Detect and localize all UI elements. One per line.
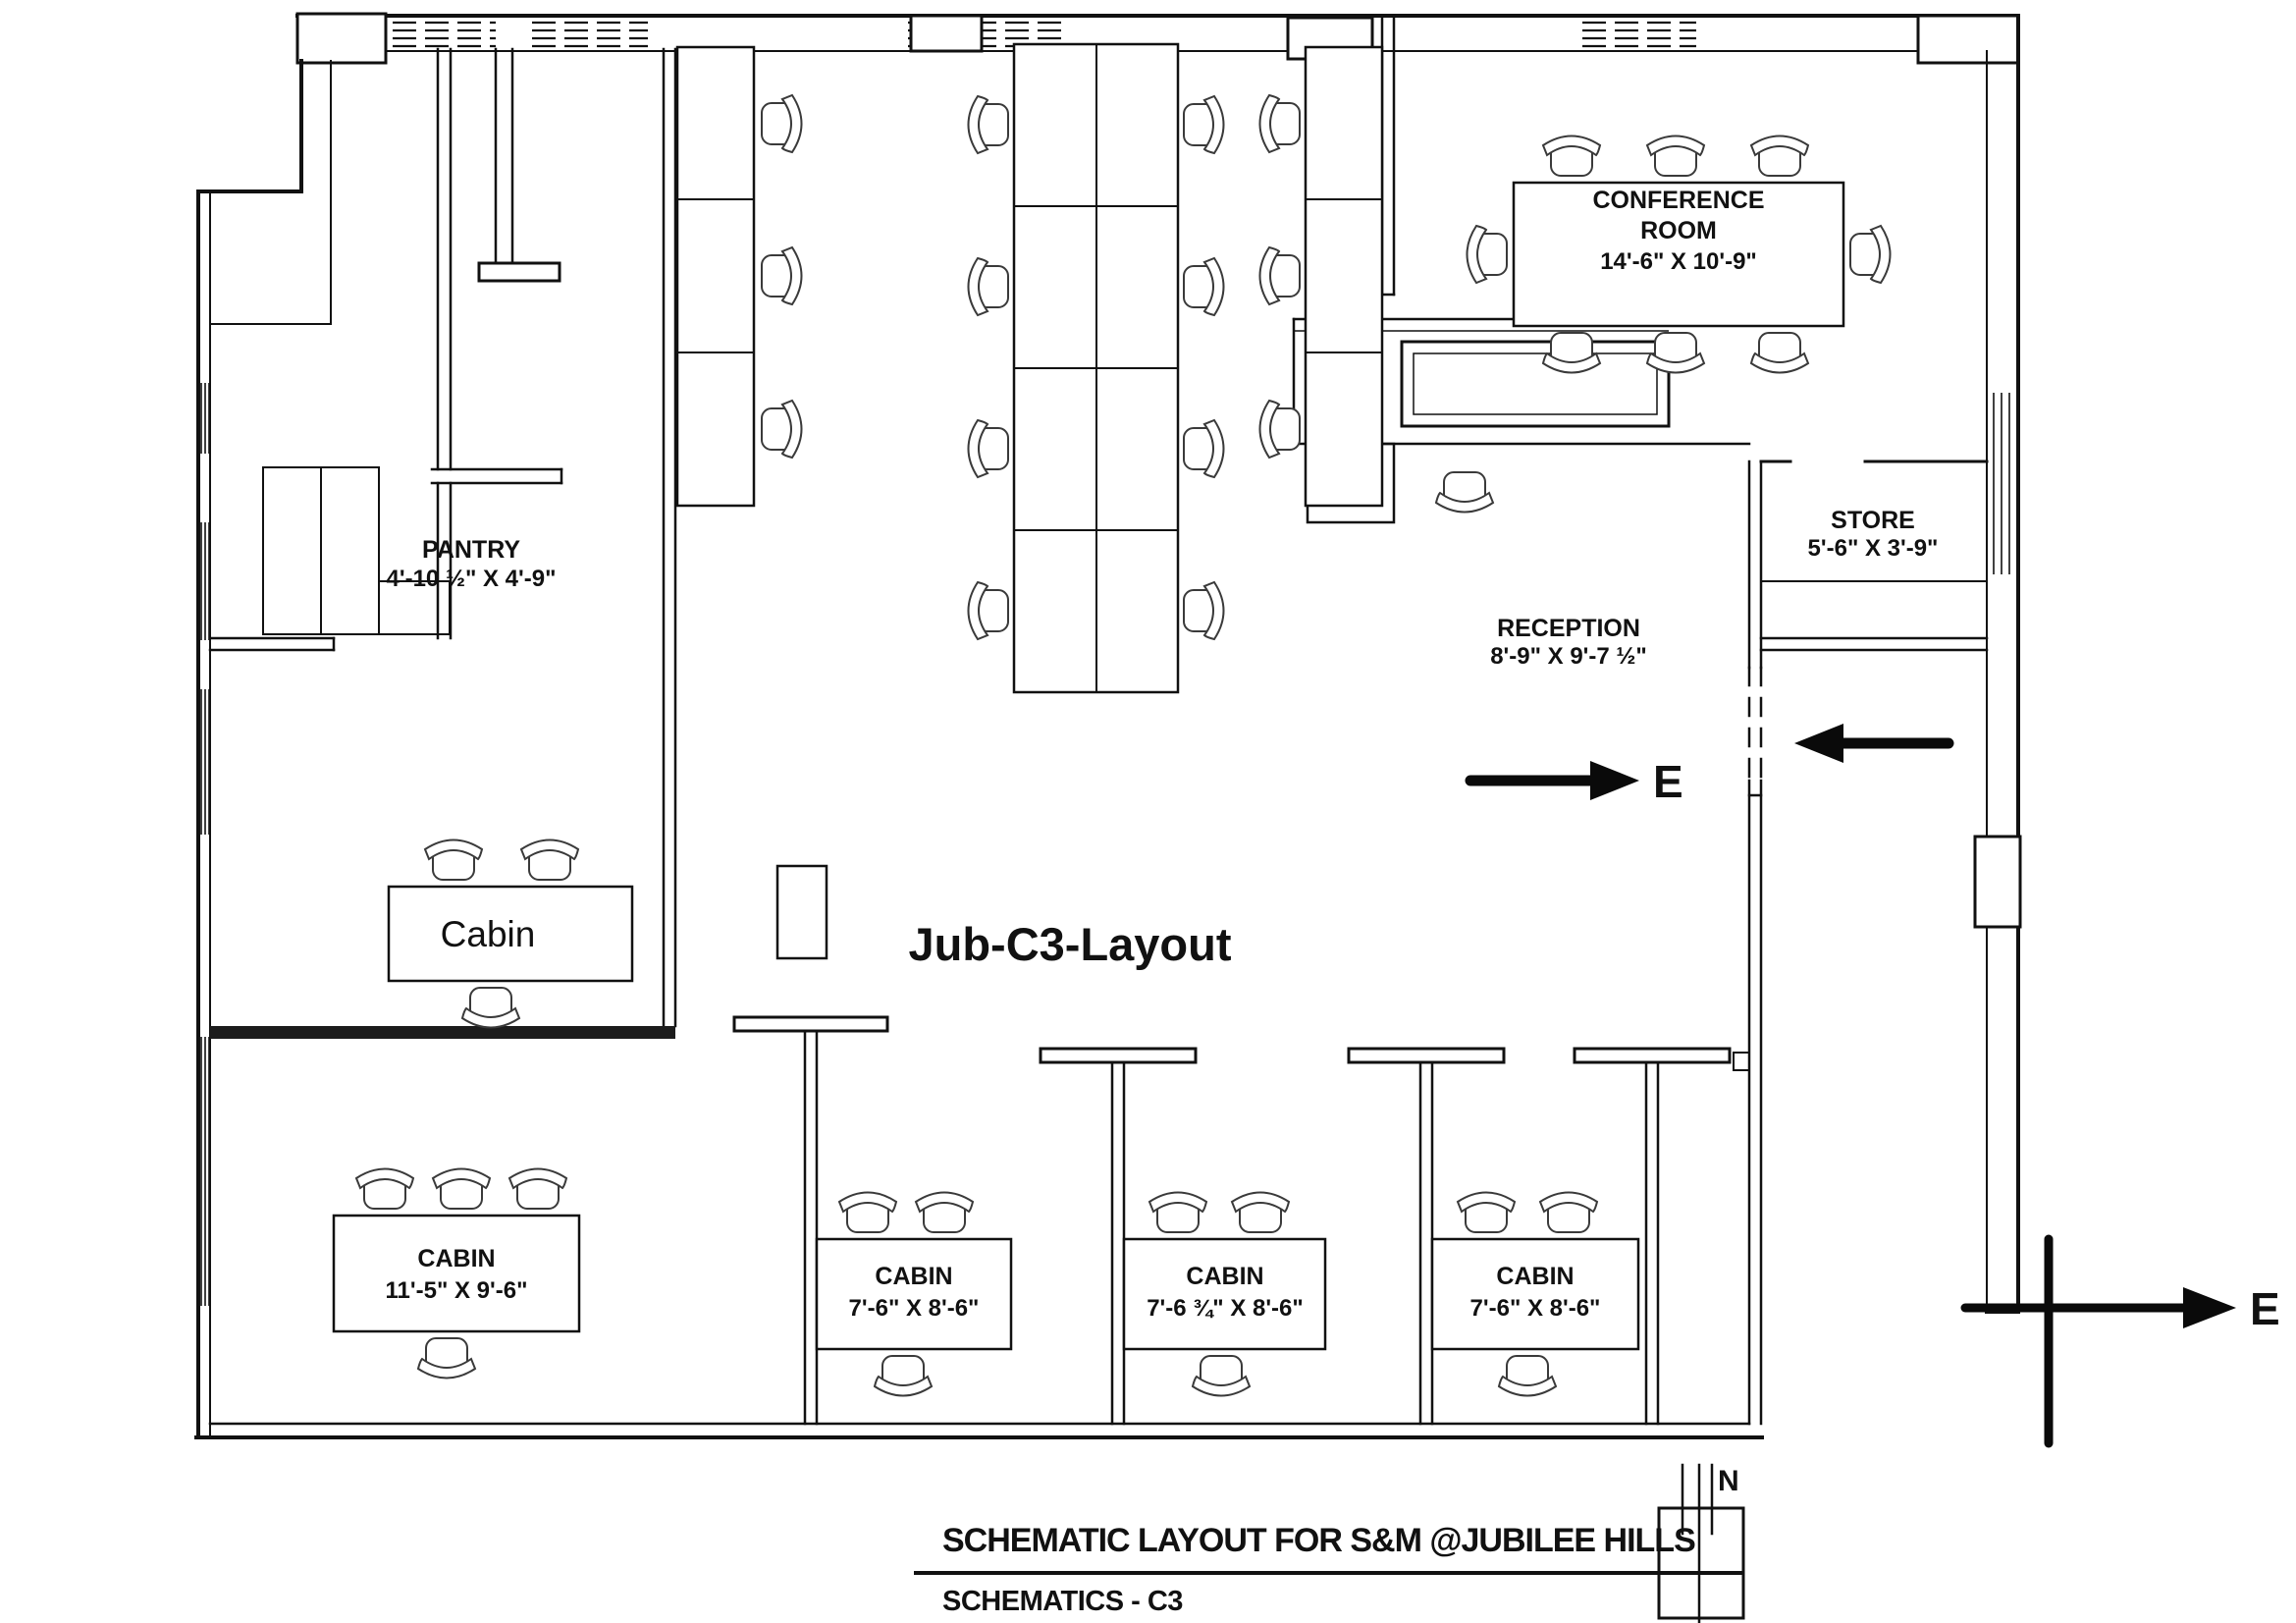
chair-icon [1260,247,1301,304]
chair-icon [1647,136,1704,177]
chair-icon [1436,472,1493,513]
north-label: N [1718,1465,1739,1497]
chair-icon [418,1338,475,1379]
floor-plan-svg: E E PANTRY 4'-10 ½" X 4'-9" CONFERENCE R… [0,0,2296,1623]
reception-name: RECEPTION [1497,615,1640,642]
cabin1-name: CABIN [417,1245,495,1272]
chair-icon [509,1169,566,1210]
chair-icon [969,96,1009,153]
conference-name: CONFERENCE [1592,187,1764,214]
chair-icon [1184,96,1224,153]
cabin1-dims: 11'-5" X 9'-6" [386,1277,528,1304]
right-wall [1975,16,2020,1312]
office-divider-wall [664,49,675,1026]
title-block: SCHEMATIC LAYOUT FOR S&M @JUBILEE HILLS … [916,1465,1743,1623]
left-window-icon [201,383,209,1306]
chair-icon [1184,258,1224,315]
store-name: STORE [1831,507,1915,534]
chair-icon [969,420,1009,477]
east-label: E [2250,1283,2280,1334]
chair-icon [521,840,578,881]
cabin3-name: CABIN [1186,1263,1263,1290]
chair-icon [1458,1193,1515,1233]
conference-wall [1382,16,1394,295]
cabinet [777,866,827,958]
chair-icon [1647,333,1704,373]
chair-icon [839,1193,896,1233]
cabin1-desk [334,1169,579,1379]
title-block-title: SCHEMATIC LAYOUT FOR S&M @JUBILEE HILLS [942,1522,1695,1559]
wall-pier [1918,16,2018,63]
cabin-mid-label: Cabin [441,914,536,954]
store-label: STORE 5'-6" X 3'-9" [1808,507,1939,562]
chair-icon [1543,333,1600,373]
chair-icon [1184,582,1224,639]
chair-icon [1850,226,1891,283]
chair-icon [762,95,802,152]
wall-pier [911,16,982,51]
cabin4-name: CABIN [1496,1263,1574,1290]
right-window-icon [1994,393,2009,574]
chair-icon [916,1193,973,1233]
cabin3-dims: 7'-6 ¾" X 8'-6" [1147,1295,1304,1322]
reception-counter-inner [1414,353,1657,414]
chair-icon [1468,226,1508,283]
cabin-mid-wall [210,1026,675,1039]
chair-icon [356,1169,413,1210]
cabin2-dims: 7'-6" X 8'-6" [849,1295,980,1322]
cabin3-desk [1124,1193,1325,1396]
conference-dims: 14'-6" X 10'-9" [1600,248,1757,275]
reception-label: RECEPTION 8'-9" X 9'-7 ½" [1490,615,1647,670]
pantry-name: PANTRY [422,536,520,564]
cabin4-desk [1432,1193,1638,1396]
chair-icon [1232,1193,1289,1233]
chair-icon [1543,136,1600,177]
wall-pier [297,14,386,63]
entrance-wall [1734,461,1761,1424]
chair-icon [969,258,1009,315]
chair-icon [1751,333,1808,373]
chair-icon [1260,95,1301,152]
chair-icon [762,247,802,304]
chair-icon [1184,420,1224,477]
workstation-cluster-a [677,47,802,506]
bottom-wall [196,1424,1762,1437]
pantry-label: PANTRY 4'-10 ½" X 4'-9" [387,536,557,592]
chair-icon [433,1169,490,1210]
chair-icon [1193,1356,1250,1396]
cabin4-dims: 7'-6" X 8'-6" [1470,1295,1601,1322]
top-window-icon [393,23,1696,46]
reception-counter [1402,342,1669,426]
workstation-cluster-b [969,44,1224,692]
east-label: E [1653,756,1683,807]
toilet-room-walls [438,49,560,469]
chair-icon [1260,401,1301,458]
floor-plan-sheet: E E PANTRY 4'-10 ½" X 4'-9" CONFERENCE R… [0,0,2296,1623]
chair-icon [425,840,482,881]
chair-icon [1540,1193,1597,1233]
pantry-dims: 4'-10 ½" X 4'-9" [387,566,557,592]
chair-icon [875,1356,932,1396]
reception-dims: 8'-9" X 9'-7 ½" [1490,643,1647,670]
chair-icon [1149,1193,1206,1233]
title-block-sheet: SCHEMATICS - C3 [942,1586,1183,1617]
chair-icon [462,988,519,1028]
store-dims: 5'-6" X 3'-9" [1808,535,1939,562]
conference-name2: ROOM [1640,217,1717,244]
left-wall [198,61,331,1437]
workstation-cluster-c [1260,47,1383,506]
cabin2-name: CABIN [875,1263,952,1290]
chair-icon [762,401,802,458]
compass-east-icon: E [1965,1239,2280,1443]
east-arrow-reception: E [1470,756,1683,807]
cabin2-desk [817,1193,1011,1396]
wall-pier [1975,837,2020,927]
chair-icon [1751,136,1808,177]
plan-title: Jub-C3-Layout [909,918,1232,970]
chair-icon [969,582,1009,639]
chair-icon [1499,1356,1556,1396]
entrance-arrow [1794,724,1949,763]
